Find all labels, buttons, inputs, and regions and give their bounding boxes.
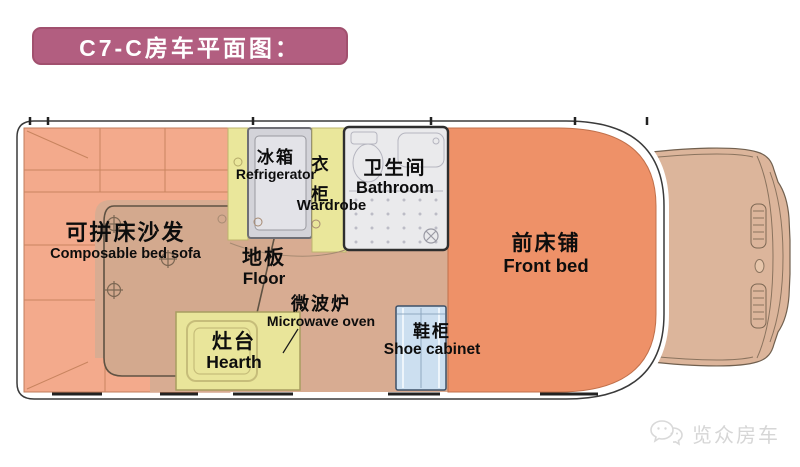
chat-bubbles-icon (648, 418, 686, 448)
label-microwave: 微波炉 Microwave oven (256, 294, 386, 330)
kitchen-counter-region (228, 128, 248, 240)
label-sofa: 可拼床沙发 Composable bed sofa (38, 221, 213, 262)
label-floor: 地板 Floor (222, 247, 306, 288)
refrigerator-region (248, 128, 312, 238)
label-front-bed: 前床铺 Front bed (486, 232, 606, 276)
label-shoe-cabinet: 鞋柜 Shoe cabinet (372, 322, 492, 358)
rv-floorplan-page: C7-C房车平面图： (0, 0, 800, 467)
label-bathroom: 卫生间 Bathroom (344, 158, 446, 198)
label-wardrobe-en: Wardrobe (284, 198, 379, 215)
watermark: 览众房车 (648, 418, 780, 448)
label-hearth: 灶台 Hearth (192, 331, 276, 373)
watermark-text: 览众房车 (692, 419, 780, 448)
